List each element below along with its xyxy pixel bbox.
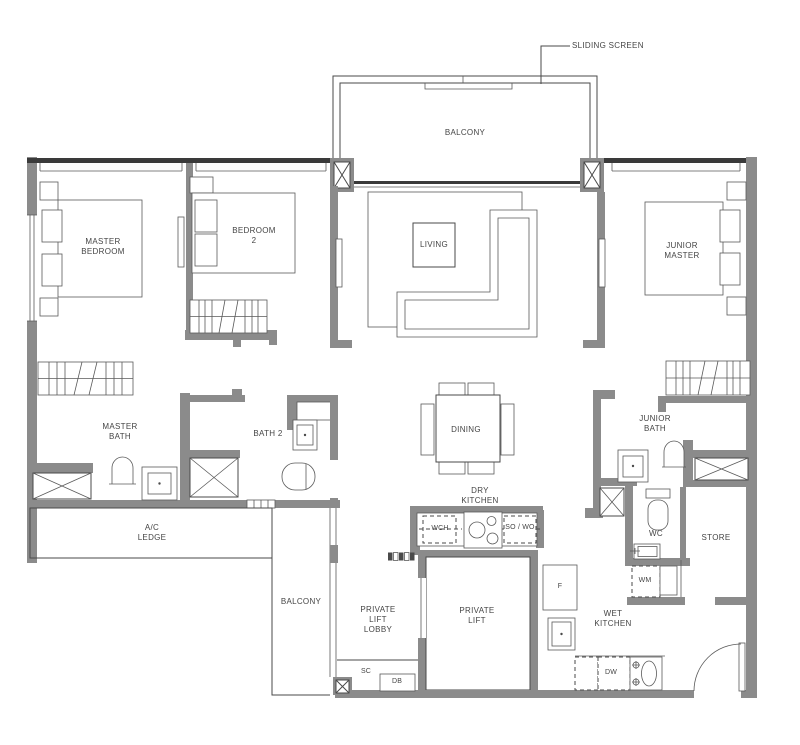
balcony-top-parapet — [333, 76, 597, 158]
appliance-label-db: DB — [392, 678, 402, 686]
master-bath-fixtures — [30, 457, 177, 500]
meter-boxes — [388, 553, 415, 561]
basin-cabinet — [548, 618, 575, 650]
wc-sink — [630, 544, 660, 559]
dryer — [660, 566, 677, 595]
bath2-fixtures — [187, 420, 317, 497]
bath2-sink — [293, 420, 317, 450]
room-label-living: LIVING — [420, 240, 448, 250]
appliance-label-wch: WCH — [431, 525, 448, 533]
master-toilet — [109, 457, 136, 484]
room-label-bath-2: BATH 2 — [253, 429, 282, 439]
junior-master-wardrobe — [666, 361, 750, 395]
room-label-wet-kitchen: WET KITCHEN — [594, 609, 631, 629]
junior-sink — [618, 450, 648, 482]
bath2-toilet — [282, 463, 315, 490]
vent-window — [247, 500, 275, 508]
room-label-dining: DINING — [451, 425, 481, 435]
junior-master-door-panel — [599, 239, 605, 287]
appliance-label-so-wo: SO / WO — [505, 524, 534, 532]
sliding-screen-label: SLIDING SCREEN — [572, 41, 644, 51]
floor-plan: SLIDING SCREEN BALCONY MASTER BEDROOM BE… — [0, 0, 800, 745]
bath2-shower — [190, 458, 238, 497]
room-label-bedroom-2: BEDROOM 2 — [232, 226, 275, 246]
corner-column-xbox — [336, 680, 349, 693]
sliding-screen-leader — [541, 46, 570, 84]
master-wardrobe — [38, 362, 133, 395]
room-label-private-lift-lobby: PRIVATE LIFT LOBBY — [360, 605, 395, 635]
appliance-label-wm: WM — [639, 577, 652, 585]
room-label-balcony-bottom: BALCONY — [281, 597, 321, 607]
room-label-junior-master: JUNIOR MASTER — [664, 241, 699, 261]
room-label-junior-bath: JUNIOR BATH — [639, 414, 671, 434]
left-wall-window — [27, 215, 37, 321]
floor-plan-drawing — [0, 0, 800, 745]
master-shower — [33, 473, 91, 499]
appliance-label-dw: DW — [605, 669, 617, 677]
room-label-ac-ledge: A/C LEDGE — [138, 523, 167, 543]
entry-door — [694, 643, 745, 691]
cooktop — [464, 512, 502, 548]
room-label-master-bedroom: MASTER BEDROOM — [81, 237, 124, 257]
junior-shower — [695, 458, 748, 480]
room-label-wc: WC — [649, 529, 663, 539]
column-xbox-left — [334, 162, 350, 188]
kitchen-sink — [630, 657, 662, 690]
room-label-store: STORE — [702, 533, 731, 543]
room-label-balcony-top: BALCONY — [445, 128, 485, 138]
bedroom2-door-panel — [336, 239, 342, 287]
appliance-label-f: F — [558, 583, 562, 591]
room-label-private-lift: PRIVATE LIFT — [459, 606, 494, 626]
bedroom2-bed — [190, 177, 295, 273]
bedroom2-wardrobe — [190, 300, 267, 333]
room-label-dry-kitchen: DRY KITCHEN — [461, 486, 498, 506]
junior-toilet — [662, 441, 686, 467]
shower-2 — [600, 488, 624, 516]
wc-fixtures — [630, 489, 677, 597]
sliding-door — [354, 181, 580, 187]
appliance-label-sc: SC — [361, 668, 371, 676]
room-label-master-bath: MASTER BATH — [102, 422, 137, 442]
master-bedroom-panel — [178, 217, 184, 267]
column-xbox-right — [584, 162, 600, 188]
master-sink — [142, 467, 177, 500]
